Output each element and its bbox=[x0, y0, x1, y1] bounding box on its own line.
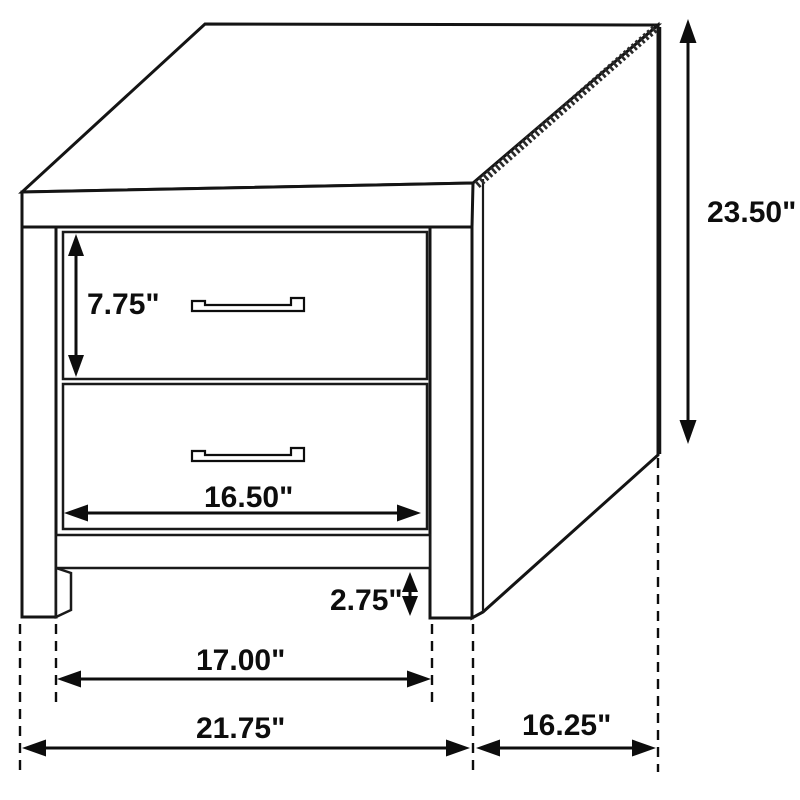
dimension-floor-clearance: 2.75" bbox=[330, 572, 418, 617]
right-stile-leg bbox=[430, 227, 472, 618]
arrowhead-down bbox=[680, 420, 697, 444]
dimension-opening-width: 17.00" bbox=[57, 644, 431, 688]
dimension-label: 17.00" bbox=[196, 644, 285, 677]
arrowhead-up bbox=[680, 19, 697, 43]
arrowhead-right bbox=[632, 740, 656, 757]
dimension-label: 7.75" bbox=[87, 288, 160, 321]
left-stile-leg bbox=[22, 227, 56, 617]
dimension-overall-height: 23.50" bbox=[680, 19, 797, 444]
dimension-label: 2.75" bbox=[330, 584, 403, 617]
arrowhead-right bbox=[407, 671, 431, 688]
dimension-depth: 16.25" bbox=[476, 709, 656, 757]
dimension-label: 23.50" bbox=[707, 196, 796, 229]
dimension-label: 21.75" bbox=[196, 712, 285, 745]
arrowhead-left bbox=[22, 740, 46, 757]
bottom-rail bbox=[56, 535, 430, 568]
nightstand-dimension-diagram: 7.75" 16.50" 2.75" 17.00" 21.75" 16.25" bbox=[0, 0, 800, 800]
diagram-canvas: 7.75" 16.50" 2.75" 17.00" 21.75" 16.25" bbox=[0, 0, 800, 800]
dimension-label: 16.25" bbox=[522, 709, 611, 742]
arrowhead-left bbox=[476, 740, 500, 757]
dimension-label: 16.50" bbox=[204, 481, 293, 514]
arrowhead-left bbox=[57, 671, 81, 688]
dimension-overall-width: 21.75" bbox=[22, 712, 470, 757]
top-front-rail bbox=[22, 183, 473, 227]
arrowhead-up bbox=[402, 572, 418, 592]
arrowhead-right bbox=[446, 740, 470, 757]
left-leg-inner-face bbox=[56, 568, 71, 617]
arrowhead-down bbox=[402, 596, 418, 616]
